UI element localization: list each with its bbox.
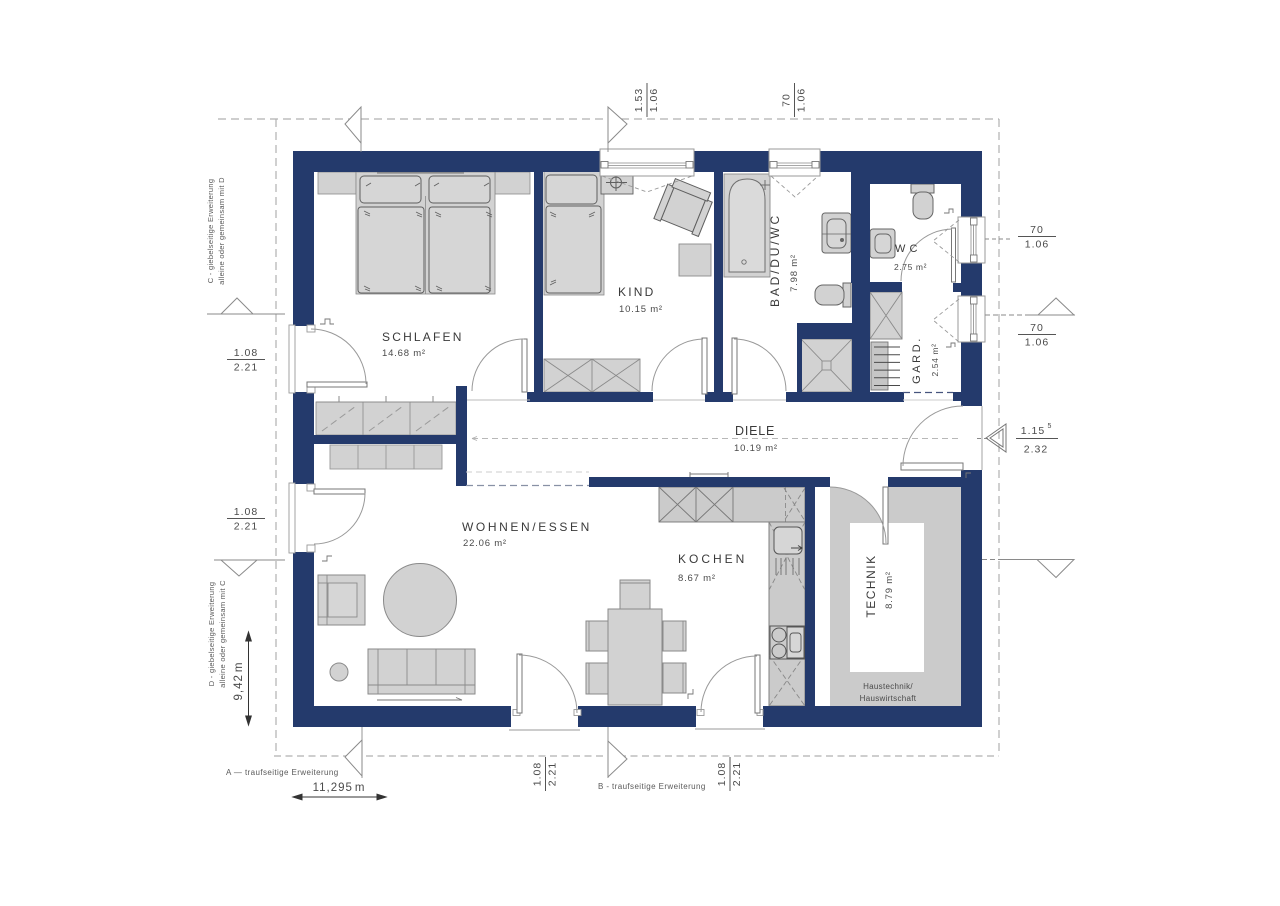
- svg-text:D - giebelseitige Erweiterung: D - giebelseitige Erweiterung: [207, 582, 216, 687]
- svg-text:1.06: 1.06: [648, 88, 660, 112]
- svg-text:1.08: 1.08: [234, 347, 258, 359]
- svg-text:22.06 m²: 22.06 m²: [463, 538, 507, 549]
- svg-text:KOCHEN: KOCHEN: [678, 552, 747, 566]
- svg-text:1.53: 1.53: [633, 88, 645, 112]
- svg-text:2.21: 2.21: [234, 521, 258, 533]
- svg-text:TECHNIK: TECHNIK: [864, 554, 878, 617]
- svg-text:WOHNEN/ESSEN: WOHNEN/ESSEN: [462, 520, 592, 534]
- svg-text:1.06: 1.06: [1025, 337, 1049, 349]
- svg-text:10.15 m²: 10.15 m²: [619, 304, 663, 315]
- svg-text:2.75 m²: 2.75 m²: [894, 262, 927, 272]
- svg-text:8.79 m²: 8.79 m²: [884, 571, 895, 609]
- svg-text:10.19 m²: 10.19 m²: [734, 443, 778, 454]
- svg-text:1.08: 1.08: [234, 506, 258, 518]
- svg-text:GARD.: GARD.: [911, 336, 923, 384]
- svg-text:1.06: 1.06: [1025, 239, 1049, 251]
- svg-text:14.68 m²: 14.68 m²: [382, 348, 426, 359]
- svg-text:W C: W C: [895, 243, 918, 255]
- svg-text:2.54 m²: 2.54 m²: [930, 343, 940, 376]
- svg-text:SCHLAFEN: SCHLAFEN: [382, 330, 464, 344]
- svg-text:1.15: 1.15: [1021, 425, 1045, 437]
- svg-text:9,42 m: 9,42 m: [233, 662, 245, 701]
- svg-text:1.08: 1.08: [716, 762, 728, 786]
- svg-text:Hauswirtschaft: Hauswirtschaft: [860, 694, 917, 703]
- svg-text:7.98 m²: 7.98 m²: [789, 254, 800, 292]
- svg-text:DIELE: DIELE: [735, 424, 775, 438]
- svg-text:70: 70: [781, 93, 793, 107]
- svg-text:2.32: 2.32: [1024, 444, 1048, 456]
- svg-text:Haustechnik/: Haustechnik/: [863, 682, 913, 691]
- svg-text:alleine oder gemeinsam mit D: alleine oder gemeinsam mit D: [217, 177, 226, 285]
- svg-text:70: 70: [1030, 224, 1044, 236]
- svg-text:KIND: KIND: [618, 285, 655, 299]
- svg-text:BAD/DU/WC: BAD/DU/WC: [768, 213, 782, 307]
- svg-text:2.21: 2.21: [547, 762, 559, 786]
- svg-text:C - giebelseitige Erweiterung: C - giebelseitige Erweiterung: [206, 179, 215, 284]
- svg-text:A — traufseitige Erweiterung: A — traufseitige Erweiterung: [226, 768, 339, 777]
- svg-text:8.67 m²: 8.67 m²: [678, 573, 716, 584]
- svg-text:5: 5: [1048, 423, 1052, 430]
- svg-text:B - traufseitige Erweiterung: B - traufseitige Erweiterung: [598, 782, 706, 791]
- svg-text:2.21: 2.21: [234, 362, 258, 374]
- svg-text:2.21: 2.21: [731, 762, 743, 786]
- svg-text:1.08: 1.08: [532, 762, 544, 786]
- svg-text:alleine oder gemeinsam mit C: alleine oder gemeinsam mit C: [218, 580, 227, 688]
- svg-text:70: 70: [1030, 322, 1044, 334]
- svg-text:1.06: 1.06: [796, 88, 808, 112]
- svg-text:11,295 m: 11,295 m: [313, 782, 366, 794]
